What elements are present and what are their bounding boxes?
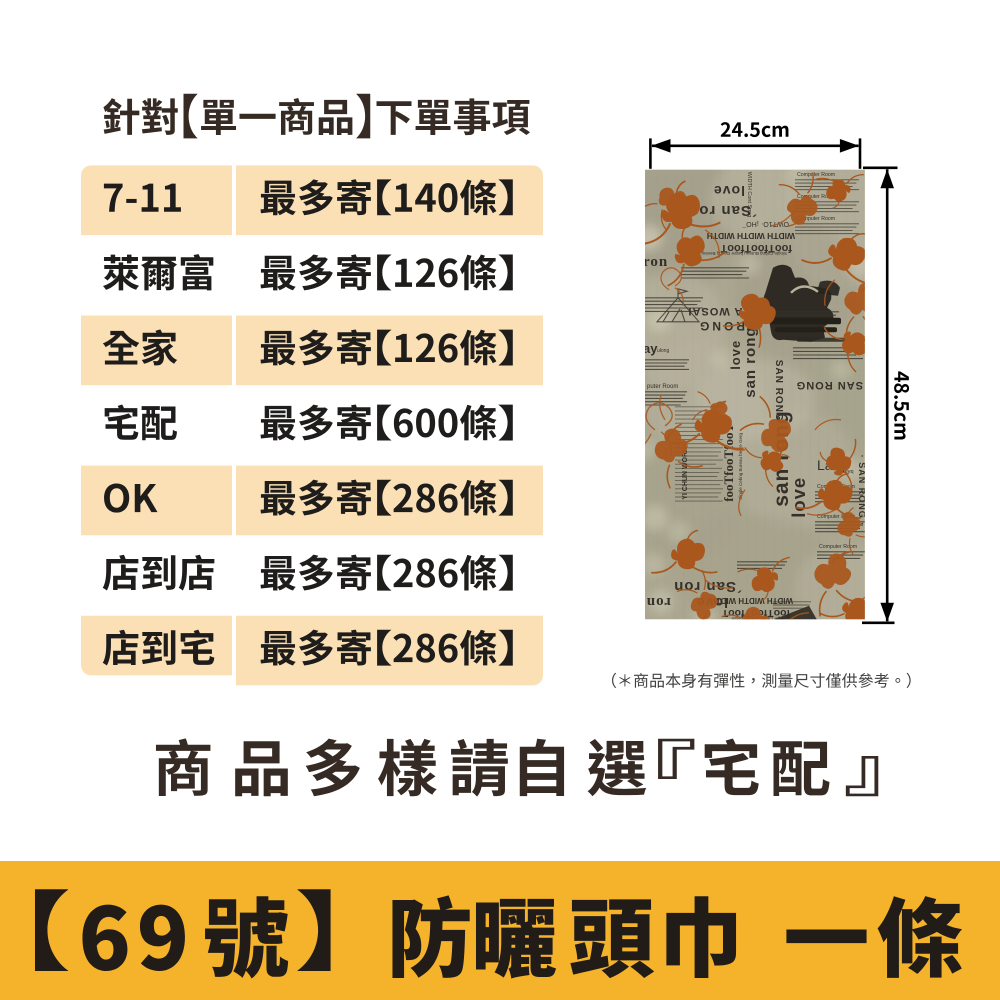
svg-text:´San ron: ´San ron xyxy=(673,578,742,595)
svg-text:love: love xyxy=(713,183,745,199)
svg-text:puter Room: puter Room xyxy=(647,384,678,390)
svg-text:¹A WOSAI: ¹A WOSAI xyxy=(687,305,747,317)
svg-text:Computer Room: Computer Room xyxy=(819,544,857,550)
svg-text:Computer Room: Computer Room xyxy=(797,172,835,178)
svg-text:love: love xyxy=(728,340,743,370)
svg-text:WIDTH Cont Spng: WIDTH Cont Spng xyxy=(746,172,752,218)
svg-text:OWT1O· ¡HO¯: OWT1O· ¡HO¯ xyxy=(742,220,789,228)
svg-text:ulong: ulong xyxy=(657,348,669,354)
svg-text:ay: ay xyxy=(643,341,658,356)
svg-text:RONG: RONG xyxy=(697,319,745,333)
svg-text:ron: ron xyxy=(643,254,668,270)
svg-text:ron: ron xyxy=(646,594,671,610)
svg-text:Single Cebng Bureau begre Geon: Single Cebng Bureau begre Geong Beeing xyxy=(701,251,787,256)
svg-text:love: love xyxy=(788,477,809,518)
svg-text:fooTfooTfooT: fooTfooTfooT xyxy=(721,423,736,501)
svg-text:Single Cebng Bureau begre Gerg: Single Cebng Bureau begre Gerg xyxy=(738,433,743,500)
svg-text:san rong: san rong xyxy=(742,326,759,397)
svg-text:WIDTH WIDTH WIDTH: WIDTH WIDTH WIDTH xyxy=(707,231,795,241)
svg-text:SAN RONG: SAN RONG xyxy=(796,379,863,391)
